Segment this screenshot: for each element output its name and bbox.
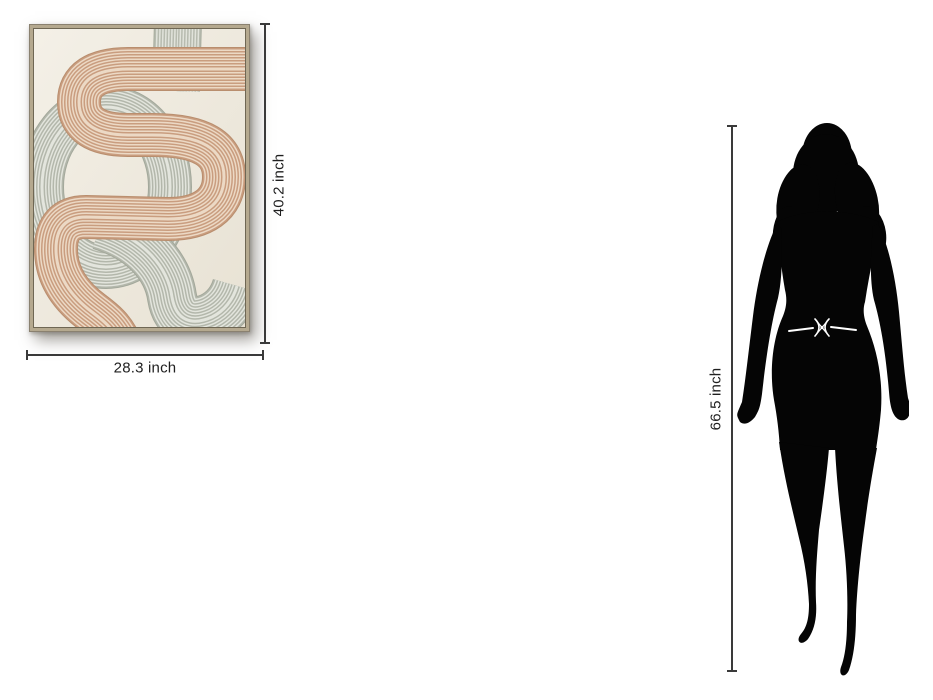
artwork-height-label: 40.2 inch — [271, 154, 288, 217]
artwork-width-cap-left — [26, 350, 28, 360]
product-dimension-figure: 40.2 inch 28.3 inch 66.5 inch — [0, 0, 933, 700]
artwork-frame — [29, 24, 250, 332]
artwork-canvas — [33, 28, 246, 328]
artwork-height-cap-bottom — [260, 342, 270, 344]
artwork-width-line — [27, 354, 263, 356]
abstract-painting — [34, 29, 245, 327]
artwork-height-line — [264, 24, 266, 344]
person-silhouette — [719, 110, 909, 685]
woman-silhouette-graphic — [719, 110, 909, 685]
artwork-height-cap-top — [260, 23, 270, 25]
artwork-width-cap-right — [262, 350, 264, 360]
artwork-width-label: 28.3 inch — [114, 360, 177, 377]
silhouette-body — [737, 123, 909, 675]
